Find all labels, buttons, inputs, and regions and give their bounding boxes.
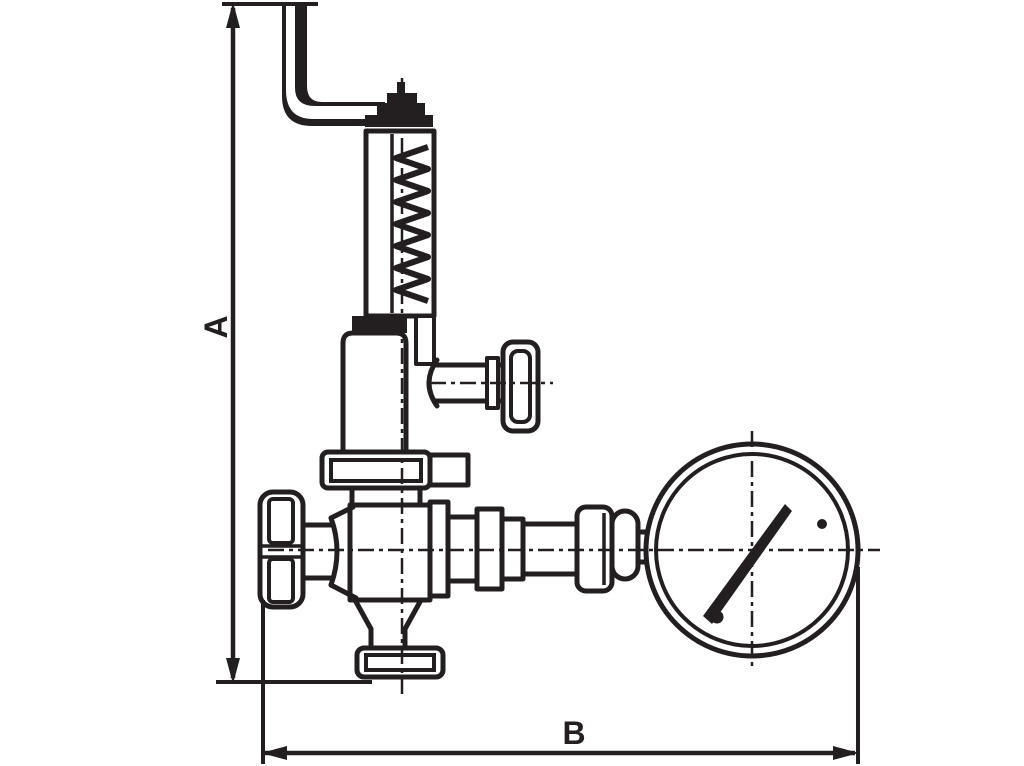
lifting-lever-icon <box>282 2 385 126</box>
mid-flange <box>322 452 468 505</box>
side-handwheel-valve <box>429 342 538 431</box>
drawing-canvas: A B <box>0 0 1024 766</box>
arrowhead-right-icon <box>833 746 859 760</box>
dimension-label-B: B <box>562 715 585 751</box>
valve-body <box>303 505 430 600</box>
dial-screw-icon <box>711 611 724 624</box>
outlet-flange <box>355 600 443 677</box>
valve-technical-drawing: A B <box>0 0 1024 766</box>
dial-screw-icon <box>817 519 827 529</box>
spring-housing <box>343 131 434 452</box>
side-handwheel-icon <box>503 342 538 431</box>
bonnet <box>343 333 406 452</box>
dimension-label-A: A <box>198 315 234 338</box>
